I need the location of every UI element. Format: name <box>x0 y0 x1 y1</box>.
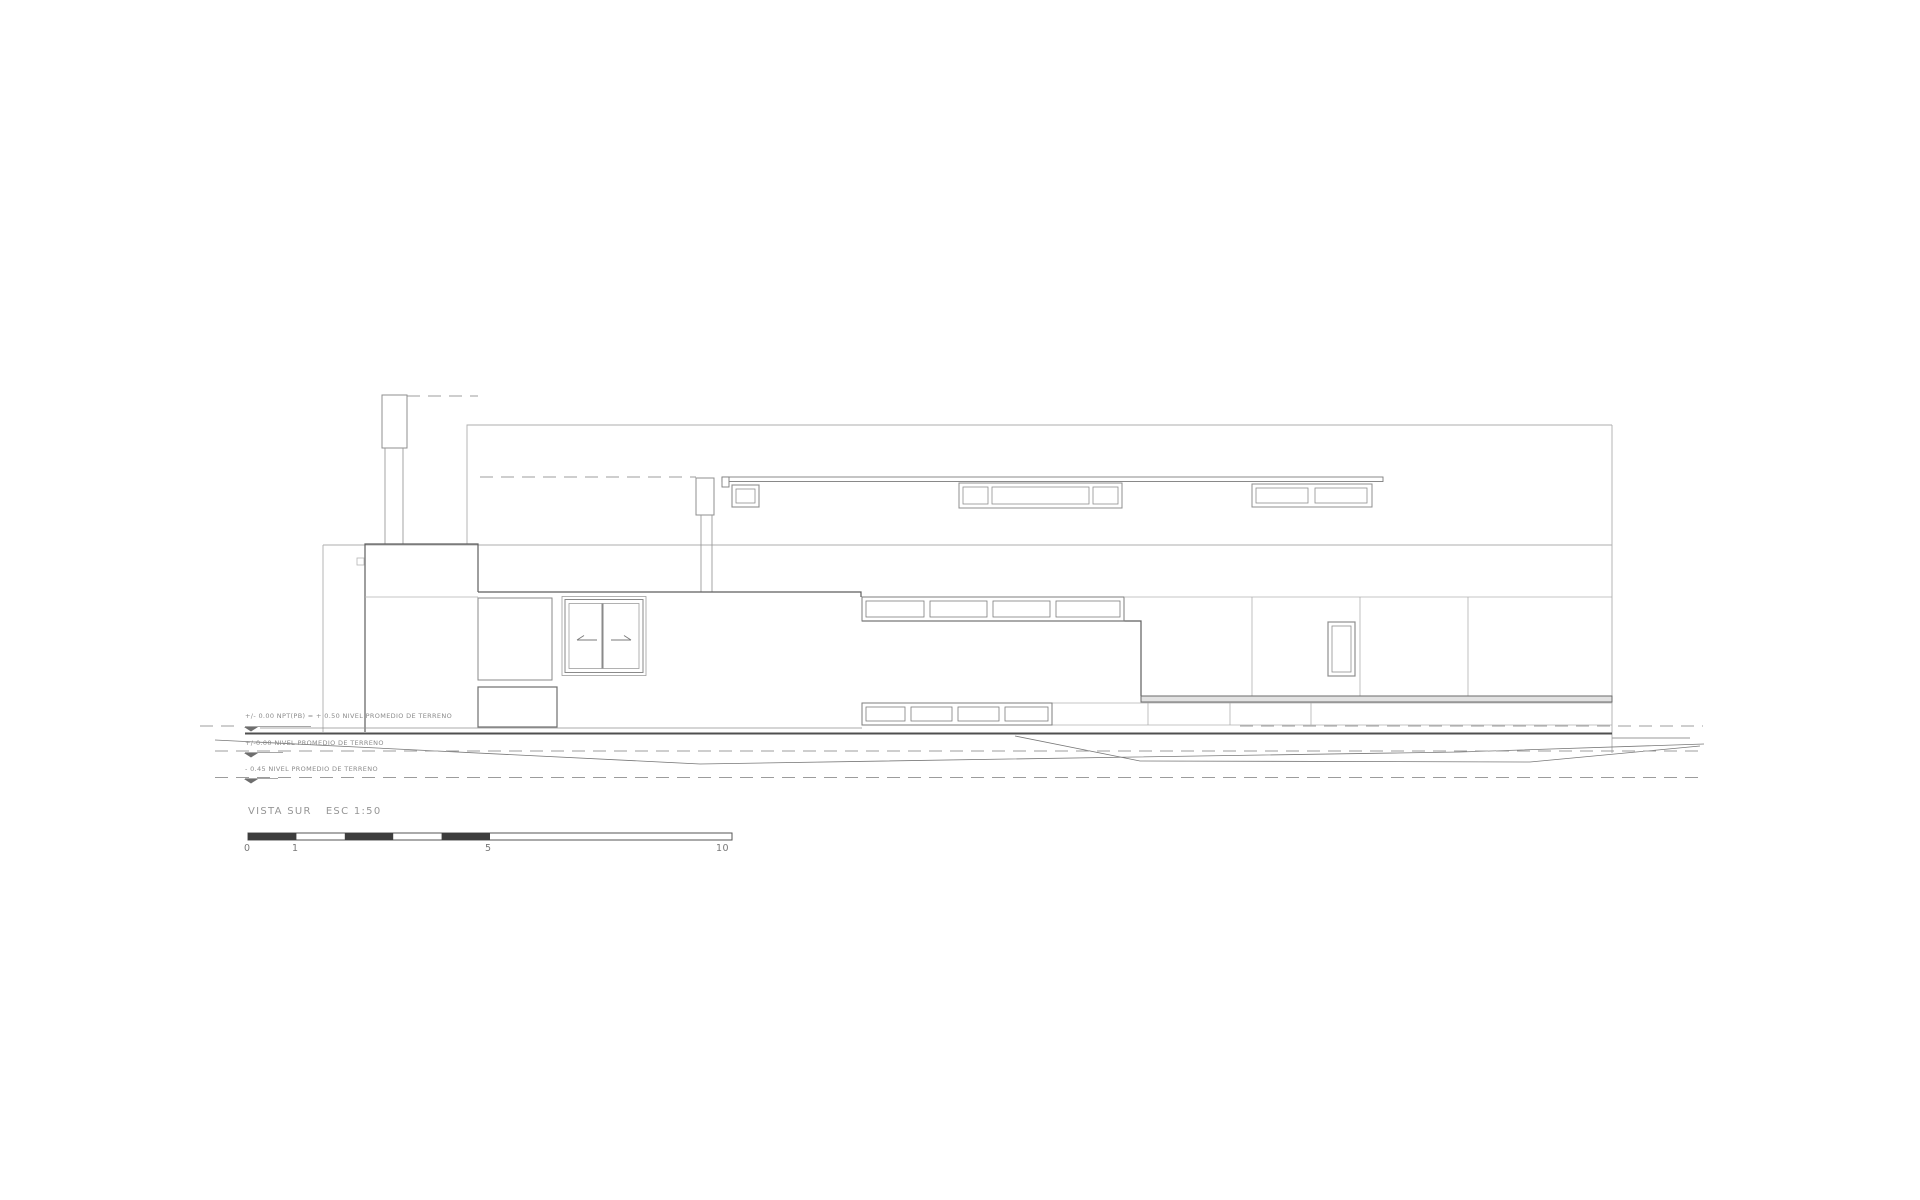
clerestory-window-band-2 <box>1252 484 1372 507</box>
view-title-name: VISTA SUR <box>248 806 312 817</box>
sliding-window <box>562 597 646 676</box>
chimney-1 <box>382 395 407 544</box>
facade-window <box>1328 622 1355 676</box>
mid-window-band <box>862 597 1124 621</box>
main-volume-outline <box>323 425 1612 753</box>
roof-dashed-lines <box>407 396 696 477</box>
balcony-slab <box>1141 696 1612 702</box>
clerestory-window-small <box>732 485 759 507</box>
lower-window-band <box>862 703 1052 725</box>
level-annotation-npt: +/- 0.00 NPT(PB) = + 0.50 NIVEL PROMEDIO… <box>245 712 452 720</box>
level-annotation-minus045: - 0.45 NIVEL PROMEDIO DE TERRENO <box>245 765 378 773</box>
slide-arrow-left-icon <box>577 636 597 641</box>
scale-bar <box>248 833 732 840</box>
wall-detail-square <box>357 558 364 565</box>
left-tower <box>365 544 478 732</box>
clerestory-window-band-1 <box>959 483 1122 508</box>
scale-tick-1: 1 <box>292 843 299 854</box>
ground-line <box>245 728 1690 738</box>
architectural-sheet: +/- 0.00 NPT(PB) = + 0.50 NIVEL PROMEDIO… <box>0 0 1920 1200</box>
plinth-strip <box>1052 703 1612 725</box>
chimney-2 <box>696 478 714 592</box>
view-title: VISTA SURESC 1:50 <box>248 806 382 817</box>
level-markers <box>244 727 311 784</box>
scale-tick-0: 0 <box>244 843 251 854</box>
wall-panels <box>478 598 557 727</box>
elevation-drawing <box>0 0 1920 1200</box>
roof-canopy <box>722 477 1383 487</box>
right-facade <box>1124 597 1612 696</box>
view-title-scale: ESC 1:50 <box>326 806 382 817</box>
slide-arrow-right-icon <box>611 636 631 641</box>
scale-tick-5: 5 <box>485 843 492 854</box>
terrain-lines <box>215 736 1704 764</box>
level-annotation-zero: +/-0.00 NIVEL PROMEDIO DE TERRENO <box>245 739 384 747</box>
scale-tick-10: 10 <box>716 843 729 854</box>
